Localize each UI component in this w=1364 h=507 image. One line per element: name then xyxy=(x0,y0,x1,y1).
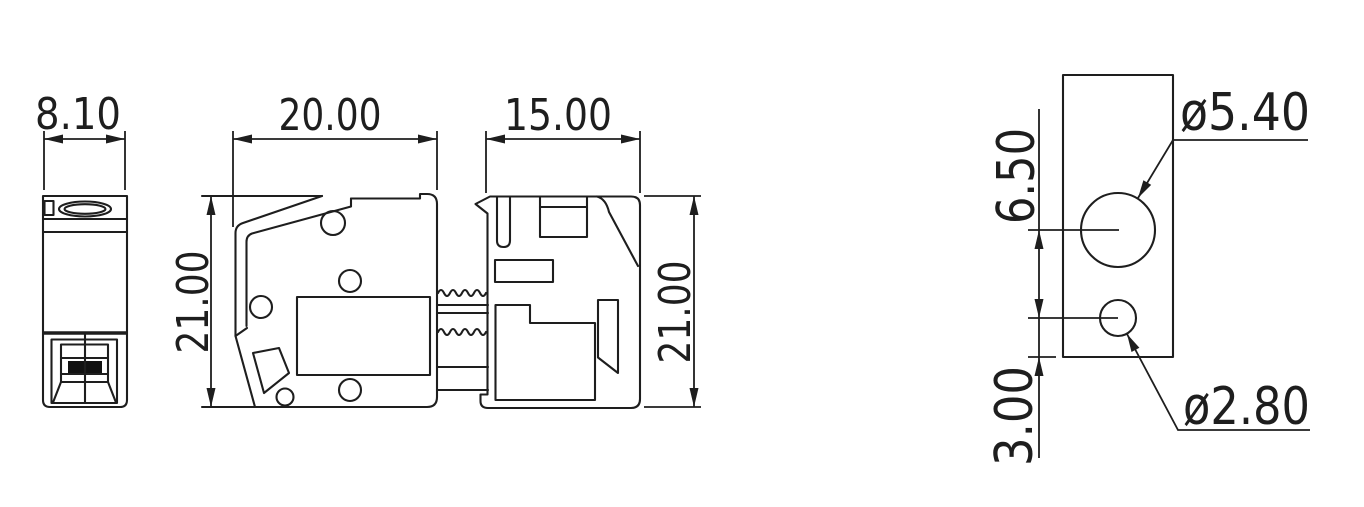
drawing-canvas: 8.10 20.00 15.00 21.00 21.00 6.50 3. xyxy=(0,0,1364,507)
body-hole-bottom xyxy=(339,379,361,401)
body-hole-small xyxy=(277,389,294,406)
dim-hole-offset-label: 3.00 xyxy=(985,366,1045,466)
spring-wave-bottom xyxy=(438,329,486,335)
cap-top-pocket xyxy=(540,197,587,238)
dim-body-width-label: 20.00 xyxy=(279,90,382,141)
arrowhead xyxy=(621,135,640,144)
arrowhead xyxy=(233,135,252,144)
cap-outline xyxy=(476,197,641,409)
body-hole-top xyxy=(321,211,345,235)
cap-mid-pocket xyxy=(495,260,553,282)
screw-slot-inner xyxy=(65,204,106,214)
cap-chamfer-line xyxy=(597,197,638,267)
side-view-cap xyxy=(476,197,641,409)
side-view-body xyxy=(202,194,437,407)
arrowhead xyxy=(690,196,699,215)
detail-plate xyxy=(1063,75,1173,357)
spring-connection xyxy=(437,290,488,390)
cap-side-rib xyxy=(598,300,618,373)
cap-slot xyxy=(497,197,510,248)
clamp-funnel-left xyxy=(53,382,61,403)
arrowhead xyxy=(418,135,437,144)
cap-lower-pocket xyxy=(496,305,596,400)
dimensions: 8.10 20.00 15.00 21.00 21.00 6.50 3. xyxy=(35,83,1310,466)
hole-detail-view xyxy=(1028,75,1173,357)
dim-front-width-label: 8.10 xyxy=(35,89,121,140)
arrowhead xyxy=(1127,334,1139,352)
body-hole-left xyxy=(250,296,272,318)
body-hole-mid xyxy=(339,270,361,292)
spring-wave-top xyxy=(438,290,486,296)
dim-cap-width-label: 15.00 xyxy=(504,90,612,141)
arrowhead xyxy=(1035,299,1044,318)
drawing-sheet: 8.10 20.00 15.00 21.00 21.00 6.50 3. xyxy=(0,0,1364,507)
front-view xyxy=(43,196,127,407)
lever-inner-edge xyxy=(247,199,352,327)
arrowhead xyxy=(1138,180,1151,198)
clamp-funnel-right xyxy=(108,382,116,403)
front-top-notch xyxy=(45,201,54,215)
arrowhead xyxy=(207,196,216,215)
dim-body-height-label: 21.00 xyxy=(168,251,219,354)
lever-end-cap xyxy=(236,328,248,336)
arrowhead xyxy=(207,388,216,407)
arrowhead xyxy=(486,135,505,144)
dim-large-hole-label: ø5.40 xyxy=(1180,83,1310,143)
dim-hole-spacing-label: 6.50 xyxy=(987,128,1047,224)
arrowhead xyxy=(1035,230,1044,249)
arrowhead xyxy=(690,388,699,407)
body-cavity-rect xyxy=(297,297,430,375)
leader-large-hole xyxy=(1138,140,1308,198)
dim-small-hole-label: ø2.80 xyxy=(1183,377,1310,437)
dim-cap-height-label: 21.00 xyxy=(650,261,701,364)
body-tilted-block xyxy=(253,348,289,393)
